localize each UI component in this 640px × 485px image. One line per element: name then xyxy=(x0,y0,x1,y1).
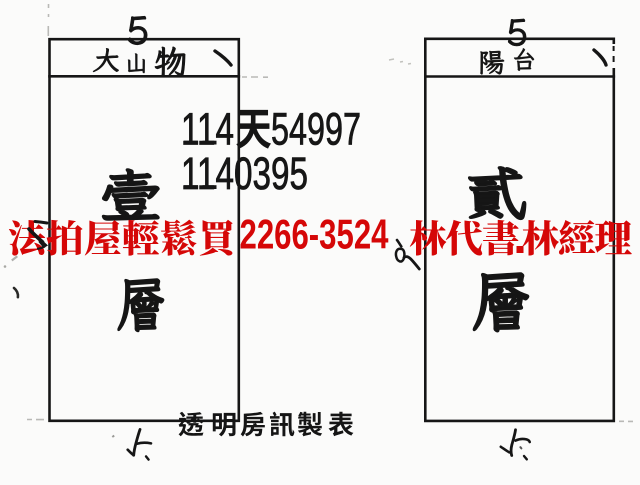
svg-text:114: 114 xyxy=(181,104,234,155)
svg-text:1140395: 1140395 xyxy=(181,148,308,199)
svg-text:2266-3524: 2266-3524 xyxy=(240,211,389,258)
svg-text:54997: 54997 xyxy=(271,104,361,155)
